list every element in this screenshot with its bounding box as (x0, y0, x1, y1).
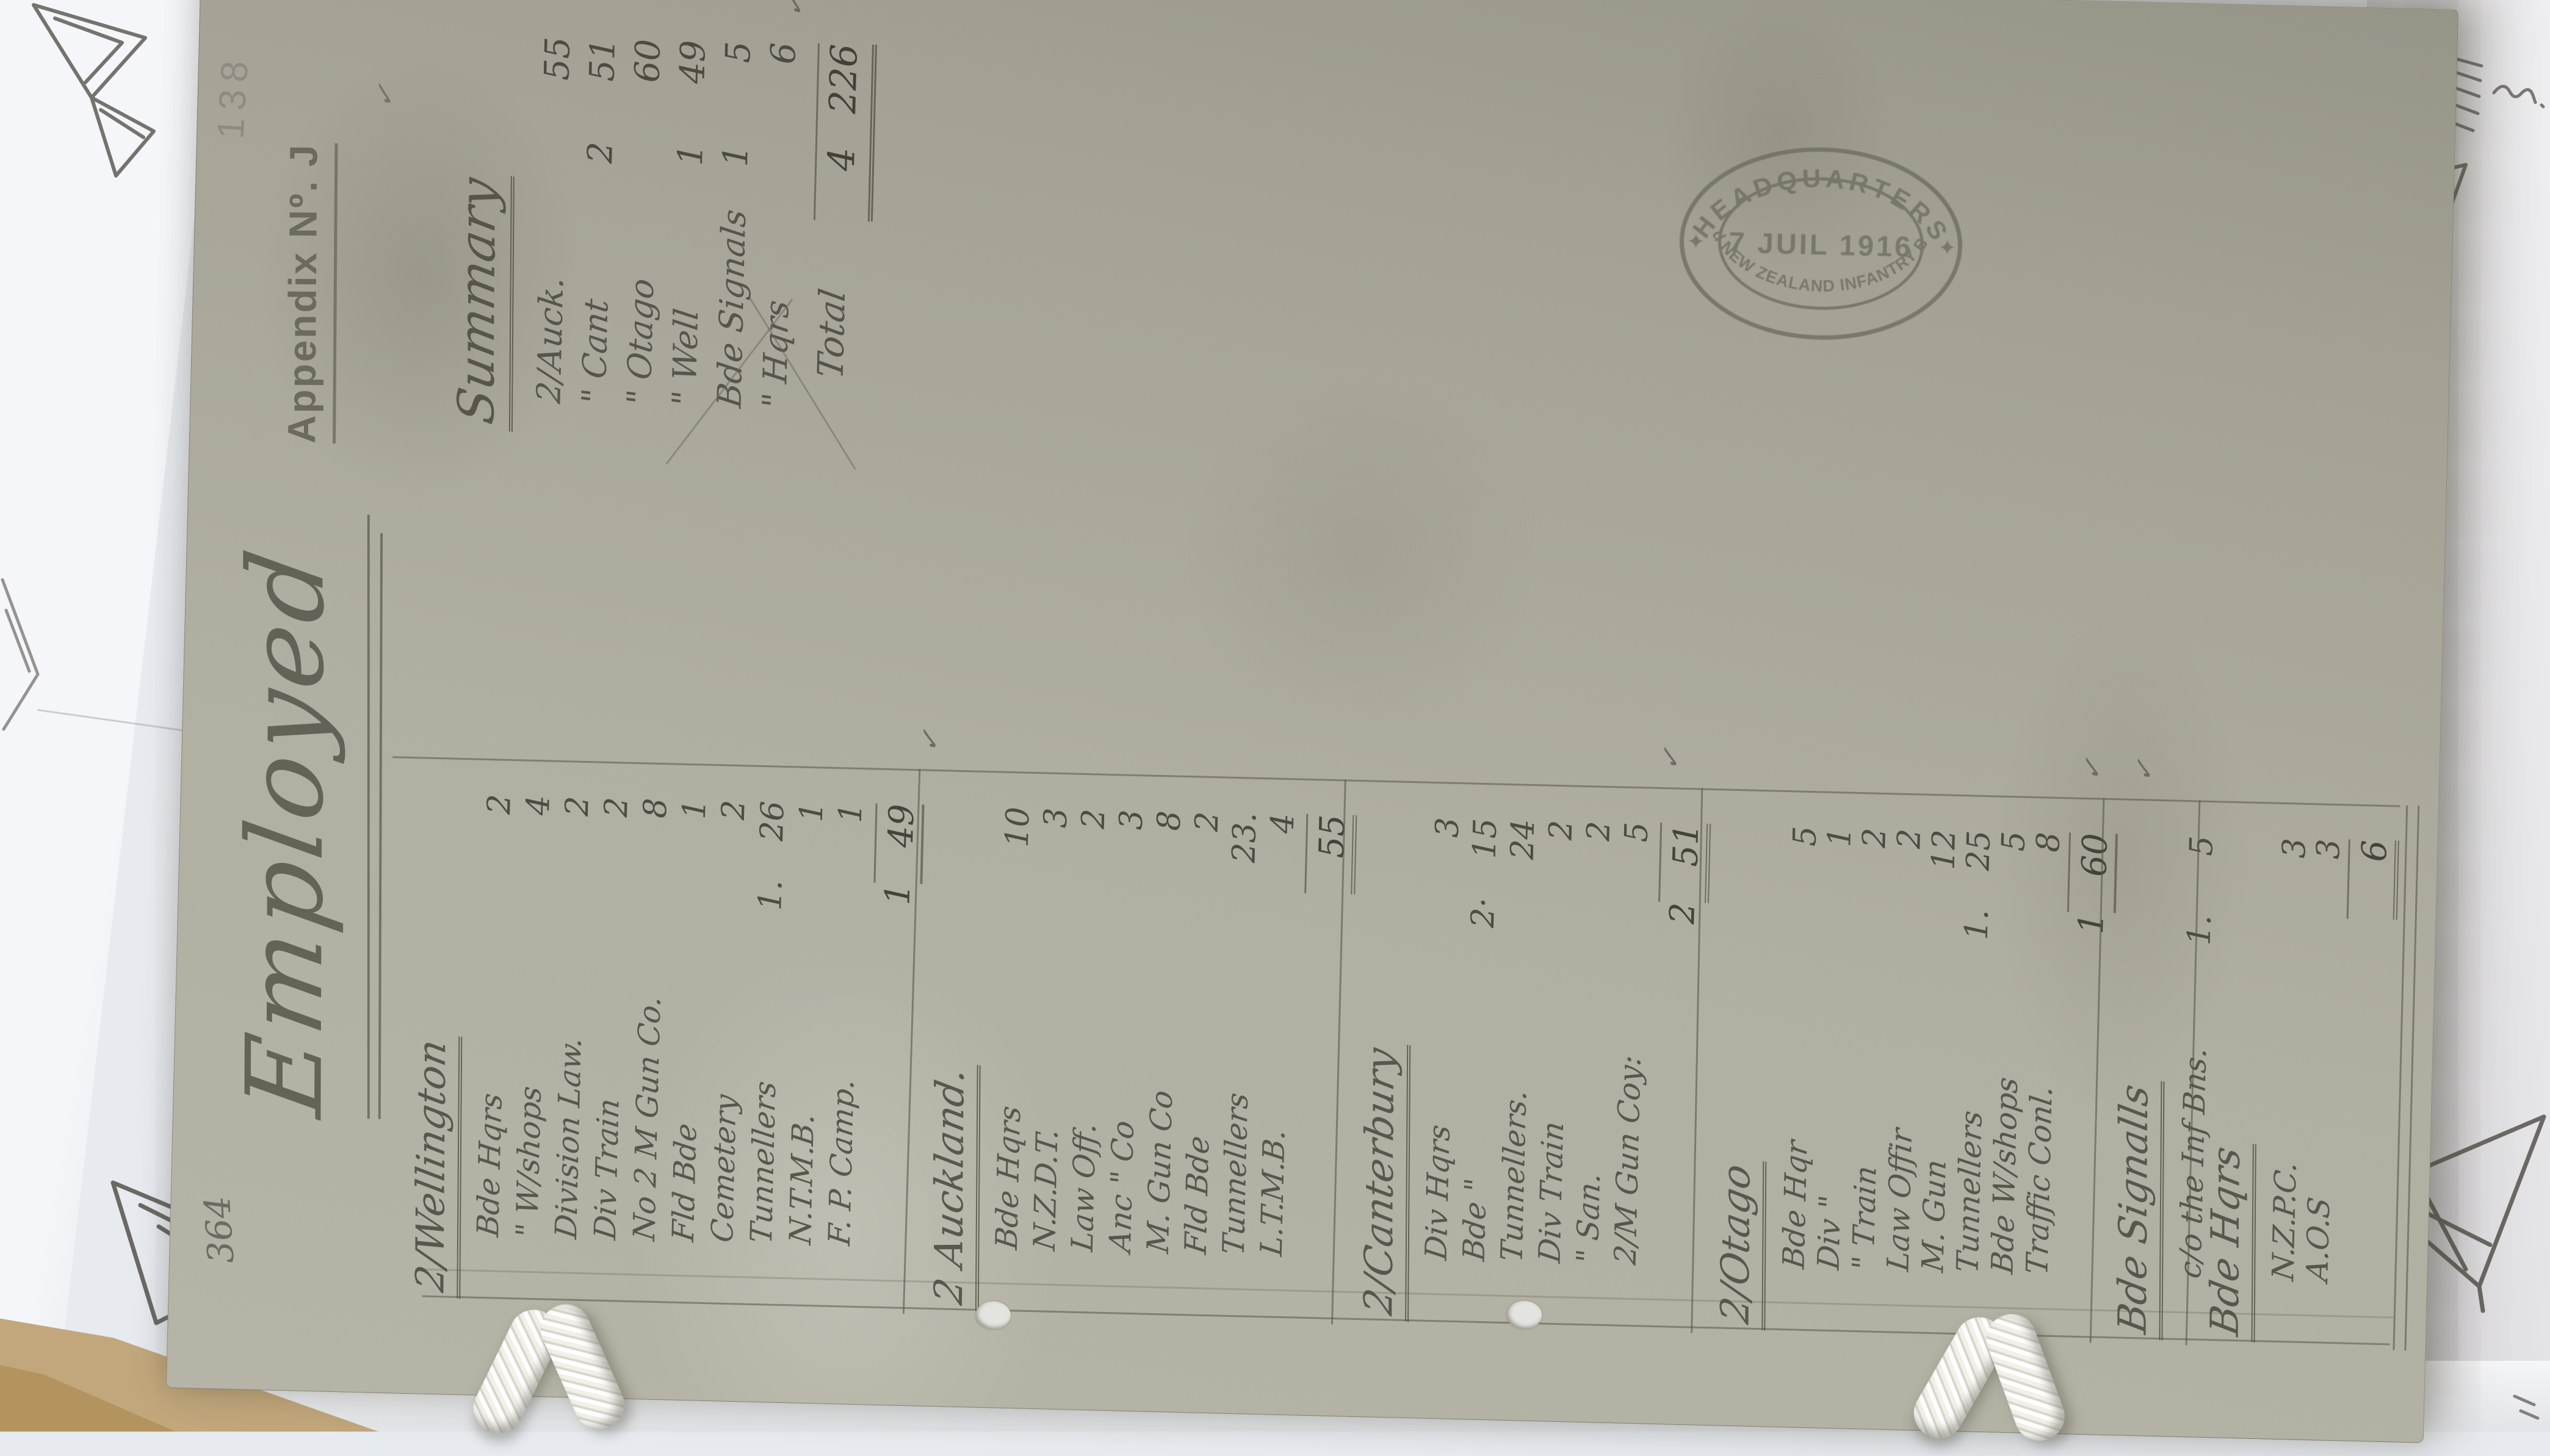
total-inner: 2 (1656, 902, 1709, 967)
appendix-tick-mark: ✓ (366, 81, 403, 111)
unit-count: 8 (2029, 832, 2067, 912)
unit-count: 15 (1465, 818, 1504, 898)
sheet-number: 138 (209, 52, 258, 140)
unit-label: Bde Signals (709, 216, 753, 434)
summary-total-row: Total 4 226 (808, 0, 878, 435)
title-underline (367, 514, 370, 1119)
appendix-label: Appendix Nº. J (279, 143, 338, 444)
tick-mark: ✓ (1652, 746, 1688, 782)
holder-leg (1979, 1307, 2071, 1447)
title-underline-2 (378, 533, 383, 1119)
unit-count: 1 (675, 799, 713, 879)
section-canterbury: 2/Canterbury Div Hqrs3Bde "2·15Tunneller… (1354, 776, 1712, 1333)
unit-count: 2 (579, 141, 621, 215)
unit-count: 60 (626, 38, 668, 143)
unit-count: 6 (762, 42, 804, 147)
punch-hole (975, 1301, 1011, 1330)
unit-count (534, 140, 536, 214)
unit-count: 5 (1994, 831, 2032, 910)
section-heading: 2/Canterbury (1356, 1036, 1410, 1322)
unit-count: 2 (1890, 828, 1928, 908)
page-holder-right (1918, 1297, 2086, 1449)
unit-count: 26 (753, 801, 791, 881)
bottom-rule-2 (2404, 805, 2419, 1350)
stamp-star-right: ✦ (1938, 235, 1957, 261)
unit-count: 8 (1149, 810, 1188, 890)
unit-count: 3 (2275, 838, 2313, 918)
photo-scene: 364 138 Appendix Nº. J ✓ Employed Summar… (0, 0, 2550, 1432)
unit-label: Bde Hqrs (469, 935, 512, 1306)
unit-count: 1 (670, 143, 711, 218)
section-bde-hqrs: Bde Hqrs N.Z.P.C.3A.O.S3 6 (2201, 796, 2400, 1350)
section-rows: Bde Hqrs2" W/shops4Division Law.2Div Tra… (469, 754, 873, 1313)
unit-count: 2· (1464, 897, 1503, 962)
unit-count: 8 (636, 798, 674, 878)
unit-count: 2 (1579, 821, 1617, 901)
unit-count: 23. (1225, 812, 1263, 892)
unit-count (2273, 917, 2275, 981)
unit-count: 2 (480, 794, 518, 874)
unit-count (478, 873, 480, 937)
unit-label: " Cant (574, 212, 618, 431)
section-wellington: 2/Wellington Bde Hqrs2" W/shops4Division… (405, 752, 925, 1314)
unit-count (1426, 896, 1428, 960)
unit-count: 12 (1924, 829, 1963, 909)
tick-mark: ✓ (911, 727, 947, 764)
tick-mark: ✓ (2125, 757, 2161, 794)
stamp-star-left: ✦ (1686, 229, 1705, 254)
unit-count: 2 (713, 799, 752, 879)
total-inner (2345, 919, 2397, 984)
sketch-left-edge (2, 580, 38, 729)
unit-count: 2 (1541, 820, 1580, 899)
unit-label: " Well (665, 215, 708, 433)
page-title: Employed (223, 539, 348, 1123)
unit-count: 49 (671, 40, 713, 145)
unit-label: " Hqrs (754, 217, 798, 435)
page-holder-left (479, 1294, 638, 1434)
section-heading: Bde Signalls (2111, 1072, 2165, 1341)
summary-block: Summary 2/Auck.55" Cant251" Otago60" Wel… (446, 0, 879, 435)
section-otago: 2/Otago Bde Hqr5Div "1" Train2Law Offir2… (1711, 785, 2119, 1344)
section-rows: Bde Hqr5Div "1" Train2Law Offir2M. Gun12… (1775, 786, 2067, 1342)
section-rows: N.Z.P.C.3A.O.S3 (2264, 798, 2346, 1349)
unit-count: 5 (1617, 821, 1655, 901)
unit-count: 4 (519, 795, 557, 874)
summary-heading: Summary (447, 165, 514, 432)
unit-count: 2 (1074, 809, 1112, 888)
unit-count: 1 (831, 802, 869, 882)
total-inner (1303, 893, 1356, 959)
unit-count: 4 (1263, 813, 1301, 893)
total-value: 60 (2067, 832, 2118, 913)
total-value: 51 (1658, 823, 1711, 903)
summary-rows: 2/Auck.55" Cant251" Otago60" Well149Bde … (529, 0, 811, 433)
section-auckland: 2 Auckland. Bde Hqrs10N.Z.D.T.3Law Off.2… (924, 765, 1358, 1325)
unit-label: Bde Hqrs (988, 948, 1031, 1318)
file-number: 364 (197, 1195, 242, 1265)
document-page: 364 138 Appendix Nº. J ✓ Employed Summar… (166, 0, 2458, 1443)
section-rows: Bde Hqrs10N.Z.D.T.3Law Off.2Anc " Co3M. … (988, 767, 1304, 1324)
unit-count: 51 (581, 38, 623, 143)
summary-total-inner: 4 (814, 147, 875, 222)
unit-count: 2 (1187, 811, 1226, 891)
unit-count: 3 (2309, 838, 2347, 918)
unit-count (1783, 905, 1785, 969)
unit-count: 25 (1959, 830, 1998, 910)
unit-count: 1. (1957, 909, 1996, 974)
unit-count: 2 (1855, 827, 1893, 907)
section-heading: 2/Otago (1713, 1152, 1767, 1331)
unit-count: 3 (1428, 817, 1466, 897)
unit-count: 2 (558, 796, 596, 876)
unit-count: 3 (1036, 807, 1074, 887)
unit-label: " Otago (619, 214, 663, 432)
total-value: 6 (2347, 840, 2399, 920)
table-row: " Hqrs6 (754, 0, 811, 433)
section-total: 2 51 (1648, 783, 1712, 1333)
total-value: 55 (1304, 814, 1357, 895)
unit-count (997, 886, 999, 950)
summary-total-value: 226 (815, 43, 877, 148)
holder-leg (533, 1297, 632, 1437)
headquarters-stamp: HEADQUARTERS 2nd NEW ZEALAND INFANTRY BD… (1666, 126, 1976, 361)
unit-count: 5 (1785, 826, 1824, 906)
unit-count: 2 (597, 796, 635, 876)
unit-count: 55 (536, 37, 578, 142)
marks-bottom-right (2515, 1396, 2538, 1418)
section-heading: 2/Wellington (408, 1028, 463, 1299)
section-heading: Bde Hqrs (2203, 1134, 2256, 1342)
unit-label: 2/Auck. (529, 211, 572, 430)
unit-count: 3 (1111, 809, 1150, 889)
unit-label: Div Hqrs (1417, 959, 1461, 1329)
tick-mark: ✓ (2073, 756, 2109, 793)
unit-count: 5 (717, 41, 759, 146)
summary-total-label: Total (809, 216, 873, 439)
unit-count: 10 (998, 807, 1036, 887)
stamp-date: 7 JUIL 1916 (1728, 226, 1913, 262)
section-heading: 2 Auckland. (926, 1056, 980, 1311)
unit-count: 1 (1820, 826, 1858, 906)
unit-count: 1 (792, 801, 830, 881)
total-inner: 1 (2065, 912, 2116, 977)
unit-count: 24 (1503, 819, 1542, 899)
section-rows: Div Hqrs3Bde "2·15Tunnellers.24Div Train… (1417, 777, 1658, 1332)
unit-count: 1. (751, 880, 790, 945)
section-total: 55 (1294, 774, 1358, 1325)
sail-sketch-top-left (34, 5, 154, 176)
